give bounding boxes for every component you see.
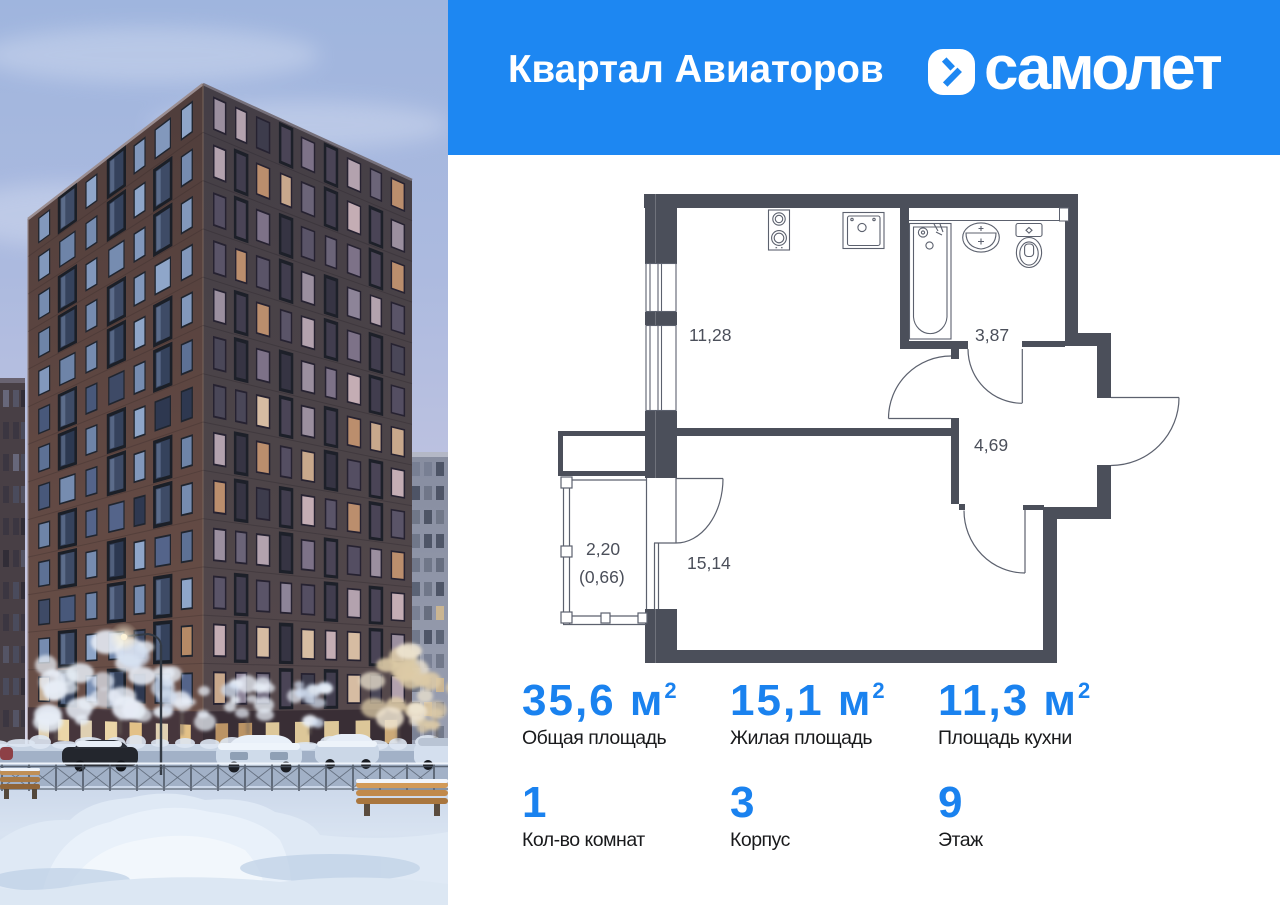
svg-text:11,28: 11,28 — [689, 325, 732, 345]
svg-text:2,20: 2,20 — [586, 539, 620, 559]
svg-text:15,14: 15,14 — [687, 553, 731, 573]
svg-text:4,69: 4,69 — [974, 435, 1008, 455]
svg-text:(0,66): (0,66) — [579, 567, 625, 587]
svg-text:3,87: 3,87 — [975, 325, 1009, 345]
